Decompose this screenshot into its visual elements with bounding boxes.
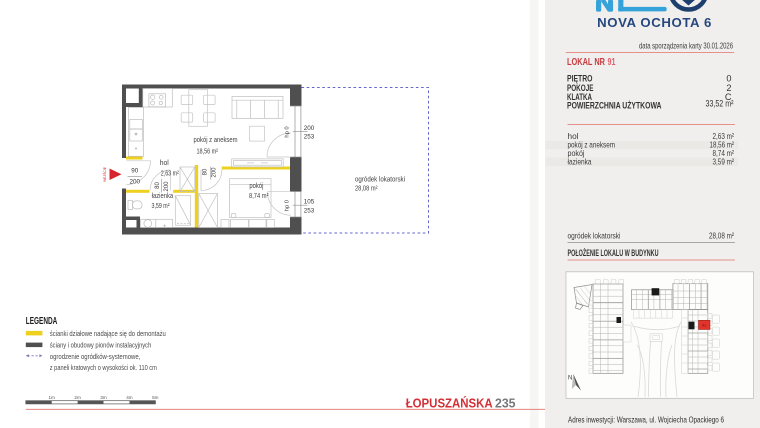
svg-text:91: 91	[702, 324, 706, 328]
svg-text:8,74 m²: 8,74 m²	[249, 191, 269, 200]
svg-text:pokój z aneksem: pokój z aneksem	[194, 135, 238, 144]
svg-text:33,52 m²: 33,52 m²	[706, 98, 734, 108]
svg-text:hp 0: hp 0	[285, 200, 291, 211]
svg-text:ścianki działowe nadające się: ścianki działowe nadające się do demonta…	[50, 329, 166, 338]
svg-text:80: 80	[155, 182, 161, 189]
svg-text:łazienka: łazienka	[568, 156, 592, 166]
svg-text:Adres inwestycji: Warszawa, ul: Adres inwestycji: Warszawa, ul. Wojciech…	[568, 415, 724, 425]
svg-text:LOKAL NR: LOKAL NR	[567, 57, 605, 68]
svg-text:z paneli kratowych o wysokości: z paneli kratowych o wysokości ok. 110 c…	[50, 363, 157, 372]
svg-text:data sporządzenia karty 30.01.: data sporządzenia karty 30.01.2026	[639, 41, 733, 50]
svg-text:pokój: pokój	[249, 181, 263, 190]
svg-text:200: 200	[304, 125, 315, 132]
svg-text:N: N	[568, 376, 572, 382]
svg-text:253: 253	[304, 134, 315, 141]
svg-text:235: 235	[495, 396, 516, 410]
svg-text:28,08 m²: 28,08 m²	[355, 186, 378, 193]
svg-text:ogródek lokatorski: ogródek lokatorski	[568, 231, 621, 241]
svg-text:200: 200	[130, 178, 141, 185]
svg-text:2,63 m²: 2,63 m²	[161, 169, 179, 178]
svg-text:3,59 m²: 3,59 m²	[152, 201, 170, 210]
svg-text:ogrodzenie ogródków-systemowe,: ogrodzenie ogródków-systemowe,	[50, 352, 141, 361]
svg-text:POŁOŻENIE LOKALU W BUDYNKU: POŁOŻENIE LOKALU W BUDYNKU	[568, 248, 659, 258]
svg-text:hol: hol	[160, 160, 169, 167]
svg-text:2m: 2m	[74, 395, 81, 400]
svg-text:3,59 m²: 3,59 m²	[713, 156, 735, 166]
svg-text:80: 80	[203, 168, 209, 175]
svg-text:3m: 3m	[100, 395, 107, 400]
svg-text:28,08 m²: 28,08 m²	[709, 231, 734, 241]
svg-text:105: 105	[304, 199, 315, 206]
svg-text:4m: 4m	[126, 395, 133, 400]
svg-text:łazienka: łazienka	[152, 191, 174, 200]
svg-text:ogródek lokatorski: ogródek lokatorski	[355, 177, 405, 184]
svg-text:200: 200	[211, 167, 217, 178]
svg-text:253: 253	[304, 207, 315, 214]
svg-text:hp 0: hp 0	[285, 126, 291, 137]
svg-text:WEJŚCIE: WEJŚCIE	[102, 166, 107, 182]
svg-text:18,56 m²: 18,56 m²	[197, 147, 219, 156]
svg-text:POWIERZCHNIA UŻYTKOWA: POWIERZCHNIA UŻYTKOWA	[567, 101, 662, 111]
svg-text:NOVA OCHOTA 6: NOVA OCHOTA 6	[597, 15, 712, 30]
svg-text:90: 90	[131, 167, 139, 174]
svg-text:5m: 5m	[152, 395, 159, 400]
svg-text:91: 91	[608, 57, 616, 68]
svg-text:ŁOPUSZAŃSKA: ŁOPUSZAŃSKA	[406, 395, 493, 410]
svg-text:ściany i obudowy pionów instal: ściany i obudowy pionów instalacyjnych	[50, 341, 152, 350]
svg-text:LEGENDA: LEGENDA	[26, 316, 58, 327]
svg-text:1m: 1m	[49, 395, 56, 400]
